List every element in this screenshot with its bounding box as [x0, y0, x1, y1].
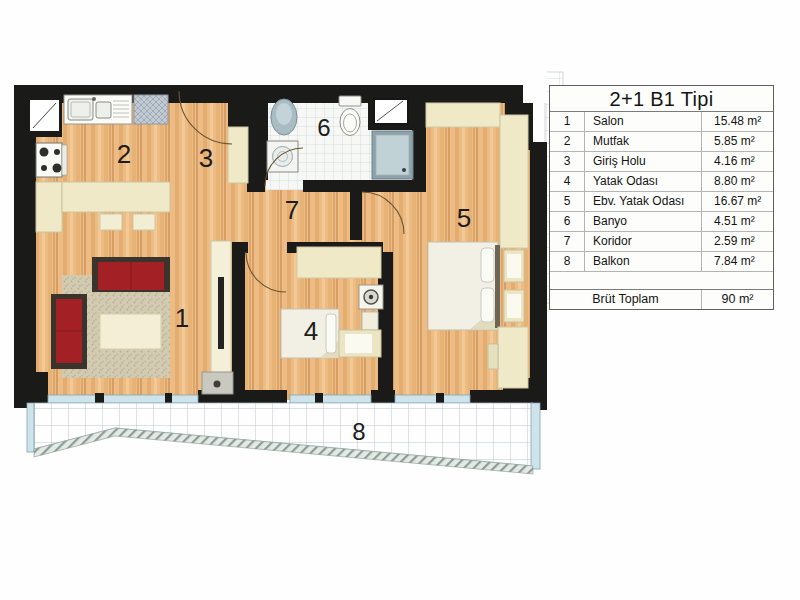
- pillow: [326, 314, 336, 353]
- room-number-label: 5: [457, 203, 471, 233]
- room-number-label: 1: [175, 303, 189, 333]
- balcony-glass-left: [27, 403, 34, 452]
- table-row: 1 Salon 15.48 m²: [550, 112, 773, 132]
- room-number-label: 8: [352, 418, 365, 445]
- wardrobe-knob: [488, 344, 498, 369]
- sink-faucet: [92, 97, 96, 101]
- sink-basin-small: [96, 102, 111, 118]
- wall-bath-right: [412, 85, 426, 192]
- scanned-floorplan-page: 1 2 3 4 5 6 7 8 2+1 B1 Tipi 1 Salon 15.4…: [0, 0, 800, 600]
- cell-room-name: Mutfak: [585, 132, 702, 151]
- bar-stool: [133, 214, 155, 230]
- cell-room-area: 4.51 m²: [702, 212, 773, 231]
- bathroom-window: [374, 99, 408, 124]
- wall-room4-top-l: [232, 242, 248, 253]
- unit-type-title: 2+1 B1 Tipi: [550, 86, 773, 112]
- wall-tv: [232, 242, 245, 392]
- cell-room-number: 6: [550, 212, 585, 231]
- table-row: 7 Koridor 2.59 m²: [550, 232, 773, 252]
- cell-room-area: 16.67 m²: [702, 192, 773, 211]
- table-row: 6 Banyo 4.51 m²: [550, 212, 773, 232]
- cell-room-name: Koridor: [585, 232, 702, 251]
- toilet-tank: [339, 96, 361, 106]
- room-number-label: 2: [117, 139, 131, 169]
- table-row: 3 Giriş Holu 4.16 m²: [550, 152, 773, 172]
- wall-bath-bottom-r: [362, 180, 412, 192]
- wall-bath-left: [247, 85, 268, 180]
- kitchen-counter-left: [36, 182, 62, 232]
- bar-stool: [100, 214, 122, 230]
- cell-room-number: 3: [550, 152, 585, 171]
- cell-room-number: 5: [550, 192, 585, 211]
- toilet-bowl: [340, 109, 360, 136]
- cell-room-number: 4: [550, 172, 585, 191]
- room-number-label: 3: [199, 143, 213, 173]
- cell-room-name: Banyo: [585, 212, 702, 231]
- cell-room-area: 5.85 m²: [702, 132, 773, 151]
- pillow: [481, 288, 494, 322]
- total-value: 90 m²: [702, 290, 773, 309]
- total-row: Brüt Toplam 90 m²: [550, 289, 773, 309]
- cell-room-area: 8.80 m²: [702, 172, 773, 191]
- balcony-glass-right: [531, 403, 540, 469]
- table-row: 8 Balkon 7.84 m²: [550, 252, 773, 272]
- cell-room-number: 1: [550, 112, 585, 131]
- kitchen-counter-bar: [62, 182, 170, 212]
- wardrobe-bottom: [498, 327, 528, 388]
- cell-room-number: 2: [550, 132, 585, 151]
- cell-room-name: Salon: [585, 112, 702, 131]
- wall-corridor-room5: [350, 183, 362, 240]
- wardrobe-top: [426, 103, 500, 127]
- bed-headboard: [495, 245, 500, 328]
- cell-room-name: Giriş Holu: [585, 152, 702, 171]
- room-number-label: 7: [285, 195, 299, 225]
- cell-room-name: Yatak Odası: [585, 172, 702, 191]
- coffee-table: [100, 314, 161, 349]
- cell-room-area: 4.16 m²: [702, 152, 773, 171]
- wall-right: [530, 142, 547, 410]
- stove-knobs: [62, 145, 67, 175]
- desk: [297, 247, 381, 278]
- kitchen-hob-panel: [134, 95, 168, 124]
- wall-hall-pier: [228, 85, 250, 127]
- balcony: [27, 403, 540, 474]
- total-label: Brüt Toplam: [550, 290, 702, 309]
- room-number-label: 6: [317, 114, 330, 141]
- cell-room-area: 15.48 m²: [702, 112, 773, 131]
- room-number-label: 4: [304, 316, 318, 346]
- table-row: 5 Ebv. Yatak Odası 16.67 m²: [550, 192, 773, 212]
- cell-room-number: 7: [550, 232, 585, 251]
- wall-bath-bottom-l: [247, 180, 265, 192]
- cell-room-area: 2.59 m²: [702, 232, 773, 251]
- table-spacer: [550, 272, 773, 289]
- table-row: 2 Mutfak 5.85 m²: [550, 132, 773, 152]
- unit-area-table: 2+1 B1 Tipi 1 Salon 15.48 m² 2 Mutfak 5.…: [549, 85, 774, 310]
- wardrobe-right: [500, 115, 528, 248]
- cell-room-number: 8: [550, 252, 585, 271]
- side-table: [362, 312, 378, 330]
- cell-room-name: Ebv. Yatak Odası: [585, 192, 702, 211]
- tv: [218, 277, 224, 349]
- corner-mask: [523, 64, 547, 103]
- wall-left: [14, 137, 36, 378]
- hall-cabinet: [228, 127, 248, 183]
- shower-drain: [402, 168, 406, 172]
- table-row: 4 Yatak Odası 8.80 m²: [550, 172, 773, 192]
- pillow: [481, 248, 494, 282]
- cell-room-name: Balkon: [585, 252, 702, 271]
- cell-room-area: 7.84 m²: [702, 252, 773, 271]
